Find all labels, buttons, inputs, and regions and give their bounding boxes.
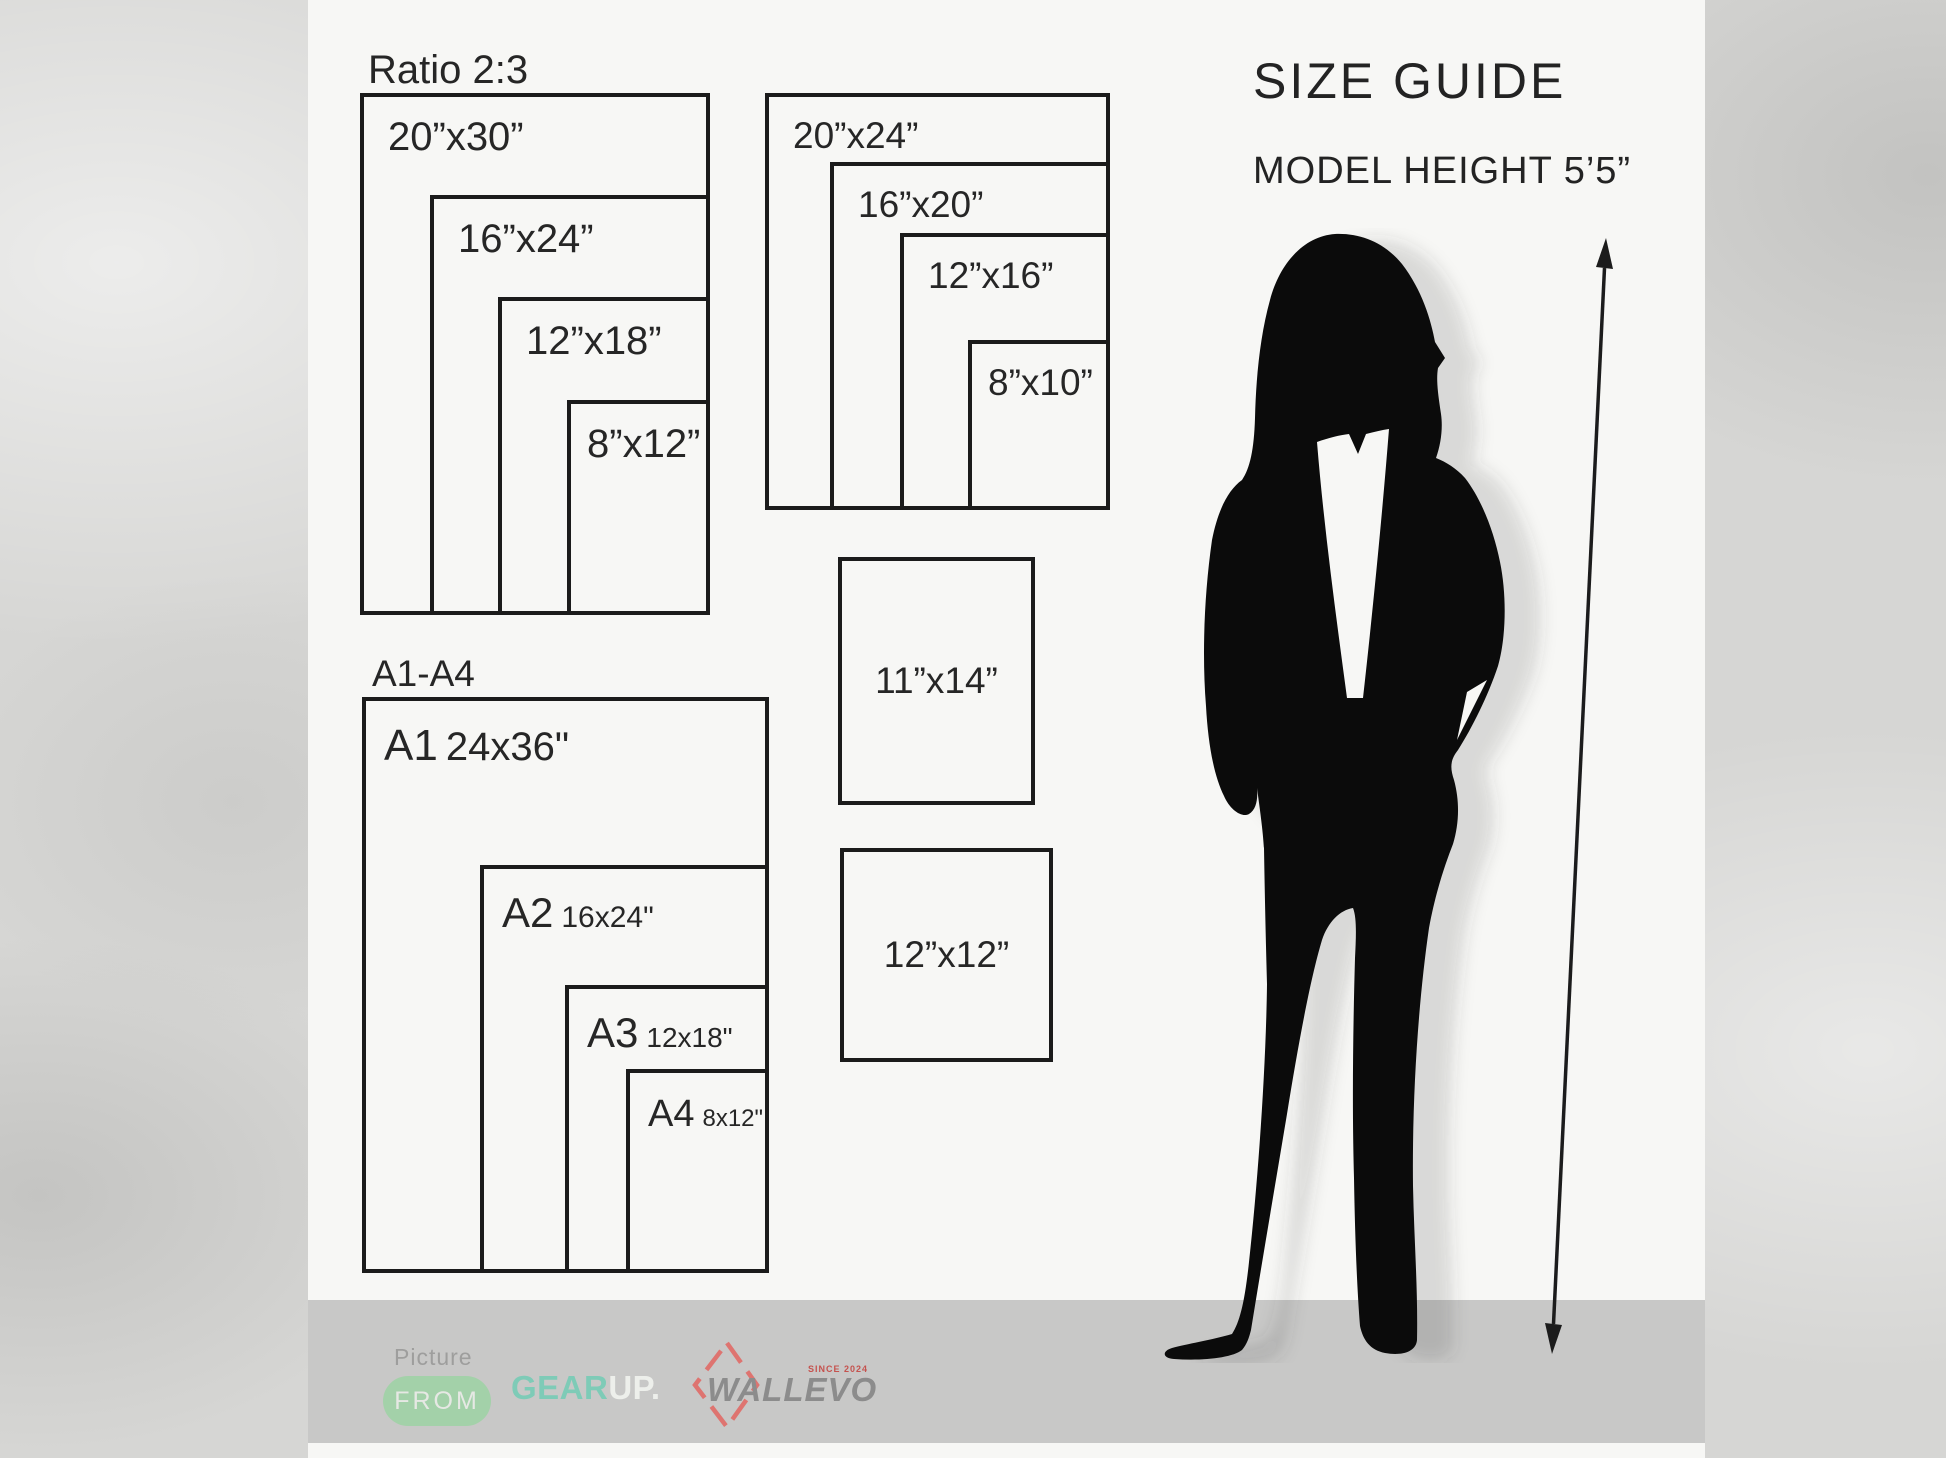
- size-label: 16”x20”: [858, 184, 983, 226]
- size-box-11x14: 11”x14”: [838, 557, 1035, 805]
- gearup-logo-up: UP.: [608, 1369, 660, 1406]
- picture-label: Picture: [394, 1344, 473, 1371]
- page-title: SIZE GUIDE: [1253, 52, 1566, 110]
- a-code: A4: [648, 1093, 694, 1136]
- size-label: A312x18": [587, 1009, 733, 1057]
- size-box-8x12: 8”x12”: [567, 400, 710, 615]
- a-size: 16x24": [561, 901, 653, 935]
- a-code: A3: [587, 1009, 638, 1057]
- a-code: A2: [502, 889, 553, 937]
- from-badge: FROM: [383, 1376, 491, 1426]
- size-label: 12”x16”: [928, 255, 1053, 297]
- gearup-logo: GEARUP.: [511, 1369, 661, 1407]
- a-size: 24x36": [446, 725, 569, 770]
- size-box-a4: A48x12": [626, 1069, 769, 1273]
- size-label: 20”x24”: [793, 115, 918, 157]
- size-label: A48x12": [648, 1093, 763, 1136]
- from-label: FROM: [394, 1387, 480, 1416]
- model-height-label: MODEL HEIGHT 5’5”: [1253, 150, 1631, 193]
- size-label: A216x24": [502, 889, 654, 937]
- wallevo-logo: SINCE 2024 WALLEVO: [678, 1332, 878, 1438]
- size-box-8x10: 8”x10”: [968, 340, 1110, 510]
- wallevo-brand-label: WALLEVO: [707, 1371, 877, 1409]
- height-arrow-icon: [1528, 228, 1628, 1368]
- size-label: 8”x12”: [587, 422, 700, 467]
- size-label: 12”x12”: [884, 934, 1009, 976]
- a-size: 8x12": [702, 1105, 763, 1133]
- size-label: 20”x30”: [388, 115, 524, 160]
- size-label: 11”x14”: [875, 660, 998, 702]
- ratio-group-title: Ratio 2:3: [368, 48, 528, 93]
- size-label: 8”x10”: [988, 362, 1093, 404]
- size-label: 16”x24”: [458, 217, 594, 262]
- a-size: 12x18": [646, 1022, 732, 1054]
- size-box-12x12: 12”x12”: [840, 848, 1053, 1062]
- size-label: A124x36": [384, 721, 569, 771]
- size-guide-poster: Ratio 2:3 20”x30” 16”x24” 12”x18” 8”x12”…: [0, 0, 1946, 1458]
- size-label: 12”x18”: [526, 319, 662, 364]
- model-silhouette: [1150, 228, 1570, 1363]
- gearup-logo-gear: GEAR: [511, 1369, 608, 1406]
- a-code: A1: [384, 721, 438, 771]
- a-series-title: A1-A4: [372, 653, 475, 695]
